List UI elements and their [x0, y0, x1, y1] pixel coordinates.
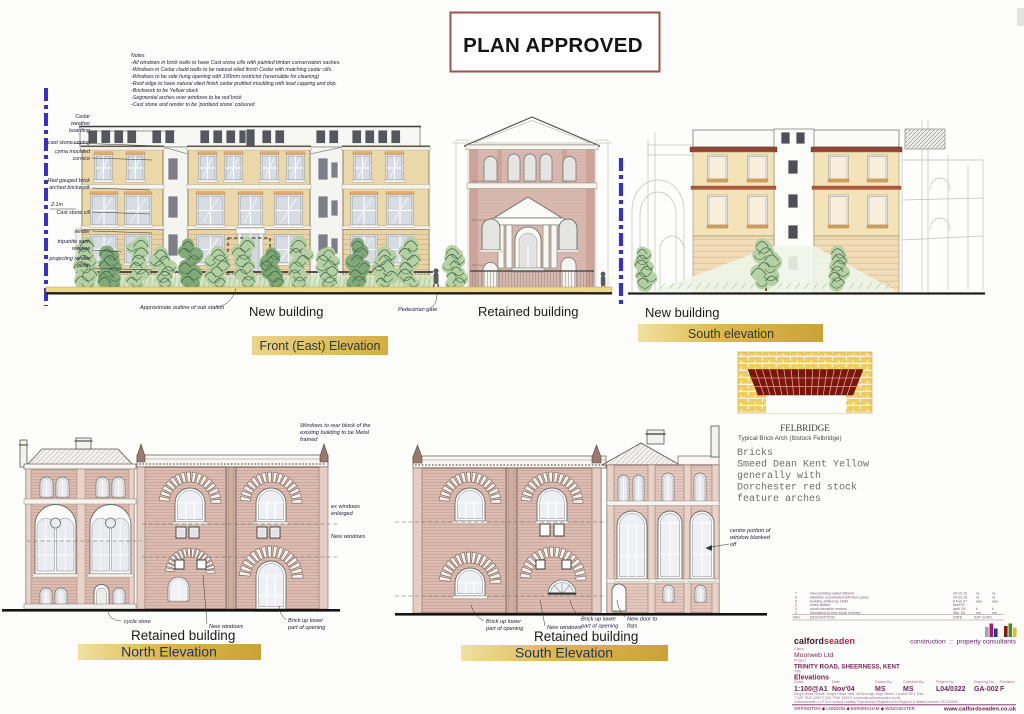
svg-text:render: render — [74, 229, 90, 235]
svg-text:construction :: property con: construction :: property consultants — [910, 639, 1017, 646]
svg-text:www.calfordseaden.co.uk: www.calfordseaden.co.uk — [943, 707, 1017, 713]
svg-text:aka: aka — [992, 599, 998, 603]
svg-text:Dorchester red stock: Dorchester red stock — [737, 482, 857, 494]
svg-text:Typical Brick Arch (Ibstock Fe: Typical Brick Arch (Ibstock Felbridge) — [738, 435, 842, 442]
svg-text:-All windows in brick walls to: -All windows in brick walls to have Cast… — [131, 60, 341, 66]
svg-text:First Floor: First Floor — [472, 263, 484, 267]
svg-text:calfordseaden LLP is a Limited: calfordseaden LLP is a Limited Liability… — [794, 700, 958, 704]
svg-text:-Windows in Cedar cladd walls: -Windows in Cedar cladd walls to be natu… — [131, 67, 333, 73]
svg-text:calfordseaden: calfordseaden — [794, 636, 855, 646]
svg-text:Brick up lower: Brick up lower — [486, 619, 522, 625]
svg-text:arched brickwork: arched brickwork — [49, 185, 90, 191]
svg-text:North Elevation: North Elevation — [121, 644, 217, 660]
svg-text:Brick up lower: Brick up lower — [581, 617, 617, 623]
svg-text:Notes: Notes — [131, 53, 145, 59]
svg-text:generally with: generally with — [737, 470, 821, 482]
svg-text:New building: New building — [645, 305, 719, 320]
svg-text:cast stone coping: cast stone coping — [48, 140, 90, 146]
svg-text:aka: aka — [976, 599, 982, 603]
svg-text:DATE: DATE — [953, 616, 963, 620]
svg-text:weather: weather — [71, 121, 90, 127]
svg-text:Drawing No.: Drawing No. — [974, 680, 995, 684]
svg-text:Client: Client — [794, 647, 805, 651]
svg-text:-Segmental arches over windows: -Segmental arches over windows to be red… — [131, 95, 242, 101]
svg-text:2.1m: 2.1m — [50, 202, 63, 208]
svg-text:-Brickwork to be Yellow stock: -Brickwork to be Yellow stock — [131, 88, 198, 94]
svg-text:Date: Date — [832, 680, 840, 684]
svg-text:-Roof edge to have natural oil: -Roof edge to have natural oiled finish … — [131, 81, 337, 87]
svg-text:existing building to be Metal: existing building to be Metal — [300, 430, 370, 436]
svg-text:-Windows to be side hung openi: -Windows to be side hung opening with 10… — [131, 74, 319, 80]
svg-text:boarding: boarding — [69, 128, 90, 134]
svg-text:New windows: New windows — [331, 534, 365, 540]
svg-text:Third Floor: Third Floor — [472, 179, 485, 183]
svg-text:TRINITY ROAD, SHEERNESS, KENT: TRINITY ROAD, SHEERNESS, KENT — [794, 664, 900, 671]
svg-text:New door to: New door to — [627, 617, 657, 623]
svg-text:REV: REV — [793, 616, 801, 620]
svg-text:tripartite sash: tripartite sash — [58, 239, 90, 245]
svg-text:South elevation: South elevation — [688, 327, 774, 341]
svg-text:part of opening: part of opening — [485, 626, 524, 632]
svg-text:projecting render: projecting render — [49, 256, 91, 262]
svg-text:-Cast stone and render to be ': -Cast stone and render to be 'portland s… — [131, 102, 256, 108]
svg-text:Project No.: Project No. — [936, 680, 955, 684]
svg-text:enlarged: enlarged — [331, 511, 354, 517]
svg-text:Pedestrian gate: Pedestrian gate — [398, 307, 437, 313]
svg-text:Front (East) Elevation: Front (East) Elevation — [260, 339, 381, 353]
svg-text:Title: Title — [794, 670, 801, 674]
svg-text:PLAN APPROVED: PLAN APPROVED — [463, 34, 643, 57]
svg-text:Bricks: Bricks — [737, 447, 773, 459]
svg-text:Project: Project — [794, 659, 807, 663]
svg-text:Drawn By: Drawn By — [875, 680, 892, 684]
svg-text:L04/0322: L04/0322 — [936, 686, 966, 693]
svg-text:F: F — [1000, 686, 1005, 693]
svg-text:Retained building: Retained building — [131, 628, 235, 643]
svg-text:Revision: Revision — [1000, 680, 1015, 684]
svg-text:Approximate outline of sub sta: Approximate outline of sub station — [139, 305, 224, 311]
svg-text:Checked By: Checked By — [903, 680, 924, 684]
svg-text:Cedar: Cedar — [75, 114, 90, 120]
svg-text:cyma moulded: cyma moulded — [55, 149, 91, 155]
svg-text:window blanked: window blanked — [730, 535, 771, 541]
svg-text:ORPINGTON ◆ LONDON ◆ BIRMI: ORPINGTON ◆ LONDON ◆ BIRMINGHAM ◆ WINCHE… — [794, 706, 915, 711]
svg-text:INIT CHKD: INIT CHKD — [974, 616, 992, 620]
svg-text:Scale: Scale — [794, 680, 804, 684]
svg-text:Red gauged brick: Red gauged brick — [48, 178, 91, 184]
svg-text:Retained building: Retained building — [534, 629, 638, 644]
svg-text:cycle store: cycle store — [124, 619, 151, 625]
svg-text:Brick up lower: Brick up lower — [288, 618, 324, 624]
svg-text:cornice: cornice — [73, 156, 90, 162]
svg-text:plinth: plinth — [76, 263, 90, 269]
svg-text:part of opening: part of opening — [287, 625, 326, 631]
svg-text:window: window — [72, 246, 91, 252]
svg-text:GA-002: GA-002 — [974, 686, 999, 693]
svg-text:South Elevation: South Elevation — [515, 645, 613, 661]
svg-text:Smeed Dean Kent Yellow: Smeed Dean Kent Yellow — [737, 459, 869, 471]
svg-text:Retained building: Retained building — [478, 304, 578, 319]
svg-text:feature arches: feature arches — [737, 493, 821, 505]
svg-text:New building: New building — [249, 304, 323, 319]
svg-text:FELBRIDGE: FELBRIDGE — [780, 423, 830, 433]
svg-text:Second Floor: Second Floor — [472, 218, 488, 222]
svg-text:framed: framed — [300, 437, 318, 443]
svg-text:DESCRIPTION: DESCRIPTION — [810, 616, 835, 620]
svg-text:Windows to rear block of the: Windows to rear block of the — [300, 423, 371, 429]
svg-text:centre portion of: centre portion of — [730, 528, 772, 534]
svg-text:off: off — [730, 542, 738, 548]
svg-text:Cast stone cill: Cast stone cill — [56, 210, 90, 216]
svg-text:ex windows: ex windows — [331, 504, 360, 510]
